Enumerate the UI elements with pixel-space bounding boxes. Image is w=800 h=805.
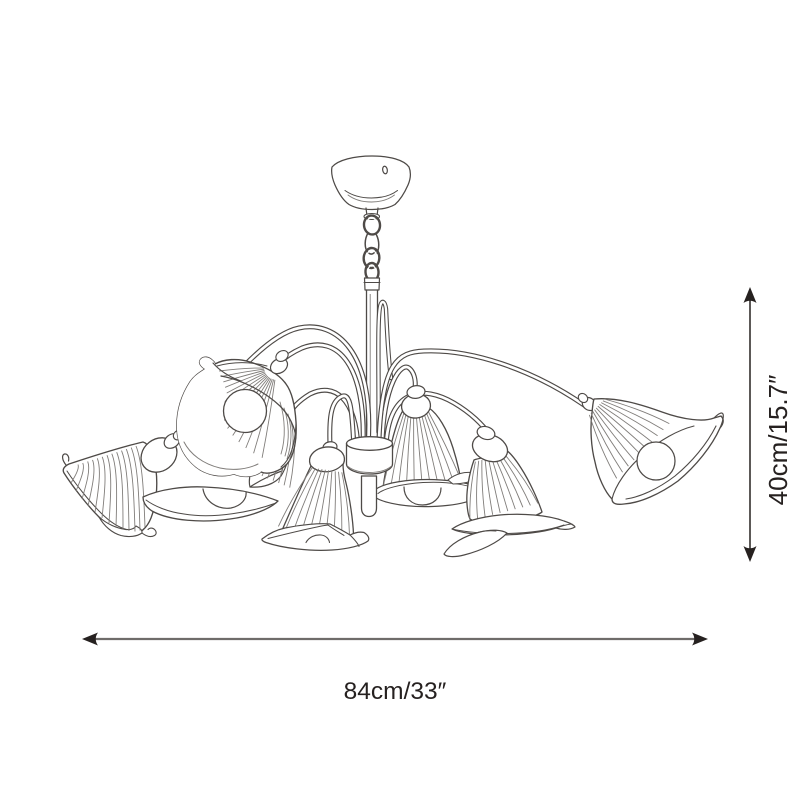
svg-text:40cm/15.7″: 40cm/15.7″ xyxy=(763,375,793,506)
svg-text:84cm/33″: 84cm/33″ xyxy=(344,678,447,705)
